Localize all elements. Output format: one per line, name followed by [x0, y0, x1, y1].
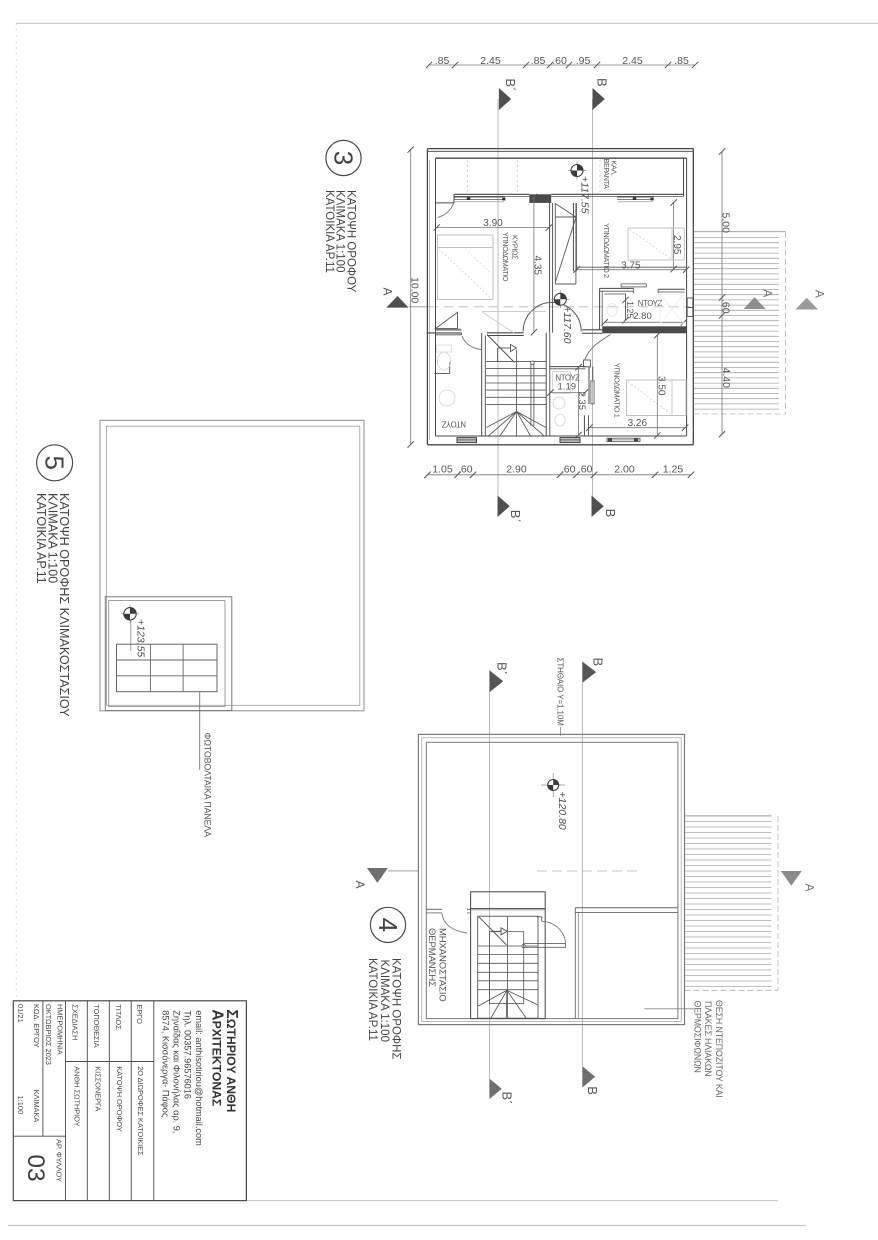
svg-text:ΚΑΤΟΙΚΙΑ ΑΡ.11: ΚΑΤΟΙΚΙΑ ΑΡ.11 [323, 190, 335, 273]
svg-text:ΚΛΙΜΑΚΑ: ΚΛΙΜΑΚΑ [32, 1090, 41, 1123]
svg-text:+117.55: +117.55 [579, 176, 591, 214]
svg-text:ΚΑΤΟΨΗ ΟΡΟΦΟΥ: ΚΑΤΟΨΗ ΟΡΟΦΟΥ [115, 1066, 124, 1132]
svg-text:1.25: 1.25 [663, 464, 684, 476]
svg-text:4.35: 4.35 [531, 256, 542, 276]
svg-text:ΑΡΧΙΤΕΚΤΟΝΑΣ: ΑΡΧΙΤΕΚΤΟΝΑΣ [209, 1009, 226, 1106]
svg-text:.60: .60 [578, 464, 593, 476]
svg-text:3.75: 3.75 [621, 261, 641, 272]
svg-text:+123.55: +123.55 [135, 619, 147, 657]
svg-text:.95: .95 [576, 55, 591, 67]
svg-text:3: 3 [329, 151, 359, 165]
svg-text:ΦΩΤΟΒΟΛΤΑΙΚΑ ΠΑΝΕΛΑ: ΦΩΤΟΒΟΛΤΑΙΚΑ ΠΑΝΕΛΑ [203, 733, 213, 838]
svg-text:.60: .60 [561, 464, 576, 476]
svg-text:.85: .85 [435, 55, 450, 67]
svg-text:Α: Α [803, 884, 817, 892]
svg-text:.85: .85 [674, 55, 689, 67]
svg-text:ΚΩΔ. ΕΡΓΟΥ: ΚΩΔ. ΕΡΓΟΥ [32, 1004, 41, 1048]
svg-text:Τηλ. 00357.96576016: Τηλ. 00357.96576016 [183, 1010, 193, 1099]
svg-text:Ζηναΐδας και Φιλονήλας αρ. 9,: Ζηναΐδας και Φιλονήλας αρ. 9, [172, 1010, 182, 1133]
svg-text:ΒΕΡΑΝΤΑ: ΒΕΡΑΝΤΑ [602, 159, 611, 190]
svg-text:3.90: 3.90 [483, 218, 503, 229]
svg-text:ΣΧΕΔΙΑΣΗ: ΣΧΕΔΙΑΣΗ [71, 1004, 80, 1040]
svg-text:ΥΠΝΟΔΩΜΑΤΙΟ: ΥΠΝΟΔΩΜΑΤΙΟ [501, 232, 510, 282]
svg-text:ΣΩΤΗΡΙΟΥ ΑΝΘΗ: ΣΩΤΗΡΙΟΥ ΑΝΘΗ [223, 1009, 240, 1112]
svg-text:Β: Β [603, 509, 618, 518]
svg-text:ΘΕΡΜΑΝΣΗΣ: ΘΕΡΜΑΝΣΗΣ [426, 928, 437, 987]
svg-text:.60: .60 [552, 55, 567, 67]
svg-text:1.05: 1.05 [432, 464, 453, 476]
svg-text:ΟΚΤΩΒΡΙΟΣ 2023: ΟΚΤΩΒΡΙΟΣ 2023 [44, 1004, 53, 1065]
svg-text:ΥΠΝΟΔΩΜΑΤΙΟ 1: ΥΠΝΟΔΩΜΑΤΙΟ 1 [612, 363, 621, 418]
svg-text:2.90: 2.90 [506, 464, 527, 476]
svg-text:Β΄: Β΄ [494, 662, 509, 675]
svg-text:2Ο ΔΙΩΡΟΦΕΣ ΚΑΤΟΙΚΙΕΣ: 2Ο ΔΙΩΡΟΦΕΣ ΚΑΤΟΙΚΙΕΣ [136, 1066, 145, 1156]
svg-text:ΚΑΤΟΙΚΙΑ ΑΡ.11: ΚΑΤΟΙΚΙΑ ΑΡ.11 [34, 493, 48, 584]
svg-text:1.19: 1.19 [558, 381, 577, 392]
svg-text:+120.80: +120.80 [556, 792, 568, 830]
svg-text:Α: Α [761, 289, 775, 297]
svg-text:Α: Α [353, 881, 367, 889]
svg-text:ΑΡ. ΦΥΛΛΟΥ: ΑΡ. ΦΥΛΛΟΥ [54, 1139, 63, 1182]
svg-text:3.50: 3.50 [656, 376, 667, 396]
svg-text:ΠΛΑΚΕΣ ΗΛΙΑΚΩΝ: ΠΛΑΚΕΣ ΗΛΙΑΚΩΝ [703, 1001, 713, 1077]
svg-text:ΑΝΘΗ ΣΩΤΗΡΙΟΥ: ΑΝΘΗ ΣΩΤΗΡΙΟΥ [72, 1066, 81, 1126]
svg-text:ΚΑΤΟΨΗ ΟΡΟΦΗΣ: ΚΑΤΟΨΗ ΟΡΟΦΗΣ [389, 958, 401, 1060]
svg-text:2.35: 2.35 [576, 392, 587, 411]
svg-text:ΤΙΤΛΟΣ: ΤΙΤΛΟΣ [114, 1004, 123, 1030]
svg-text:Α: Α [381, 288, 395, 296]
svg-text:ΚΥΡΙΩΣ: ΚΥΡΙΩΣ [510, 235, 519, 260]
svg-text:2.95: 2.95 [671, 235, 682, 255]
svg-text:Β: Β [595, 78, 610, 87]
svg-text:.60: .60 [720, 299, 732, 314]
svg-text:2.45: 2.45 [622, 55, 643, 67]
svg-text:.60: .60 [458, 464, 473, 476]
svg-text:ΝΤΟΥΖ: ΝΤΟΥΖ [441, 420, 466, 429]
svg-text:ΚΛΙΜΑΚΑ 1:100: ΚΛΙΜΑΚΑ 1:100 [378, 960, 390, 1042]
svg-text:ΚΙΣΣΟΝΕΡΓΑ: ΚΙΣΣΟΝΕΡΓΑ [94, 1066, 103, 1111]
svg-text:10.00: 10.00 [408, 277, 420, 303]
svg-text:01/21: 01/21 [16, 1004, 25, 1023]
svg-text:ΚΑΤΟΙΚΙΑ ΑΡ.11: ΚΑΤΟΙΚΙΑ ΑΡ.11 [366, 958, 378, 1041]
svg-text:03: 03 [22, 1154, 49, 1181]
svg-text:8574, Κισσόνεργα- Πάφος: 8574, Κισσόνεργα- Πάφος [161, 1010, 171, 1118]
svg-text:Β: Β [585, 1086, 600, 1095]
svg-text:3.26: 3.26 [628, 418, 648, 429]
svg-text:1:100: 1:100 [16, 1096, 25, 1115]
svg-text:+117.60: +117.60 [561, 306, 573, 344]
svg-text:Β΄: Β΄ [499, 1092, 514, 1105]
svg-text:2.45: 2.45 [480, 55, 501, 67]
svg-text:2.00: 2.00 [614, 464, 635, 476]
svg-text:ΕΡΓΟ: ΕΡΓΟ [135, 1004, 144, 1024]
svg-text:ΗΜΕΡΟΜΗΝΙΑ: ΗΜΕΡΟΜΗΝΙΑ [56, 1004, 65, 1055]
svg-text:4: 4 [373, 918, 403, 932]
svg-text:Β΄: Β΄ [503, 78, 518, 91]
svg-text:ΝΤΟΥΖ: ΝΤΟΥΖ [638, 299, 663, 308]
svg-text:Β: Β [591, 658, 606, 667]
svg-text:ΥΠΝΟΔΩΜΑΤΙΟ 2: ΥΠΝΟΔΩΜΑΤΙΟ 2 [602, 223, 611, 278]
svg-text:2.80: 2.80 [633, 311, 652, 322]
svg-text:5.00: 5.00 [720, 213, 732, 234]
svg-text:.85: .85 [531, 55, 546, 67]
svg-text:5: 5 [40, 456, 70, 470]
svg-text:email: anthisotiriou@hotmail.c: email: anthisotiriou@hotmail.com [194, 1010, 204, 1146]
svg-text:ΘΕΡΜΟΣΙΦΩΝΩΝ: ΘΕΡΜΟΣΙΦΩΝΩΝ [693, 1001, 703, 1073]
svg-text:4.40: 4.40 [720, 368, 732, 389]
svg-text:Β΄: Β΄ [508, 510, 523, 523]
svg-text:ΣΤΗΘΑΙΟ Υ=1.10Μ: ΣΤΗΘΑΙΟ Υ=1.10Μ [556, 658, 565, 727]
svg-text:ΘΕΣΗ ΝΤΕΠΟΖΙΤΟΥ ΚΑΙ: ΘΕΣΗ ΝΤΕΠΟΖΙΤΟΥ ΚΑΙ [714, 1000, 724, 1098]
svg-text:ΤΟΠΟΘΕΣΙΑ: ΤΟΠΟΘΕΣΙΑ [92, 1004, 101, 1047]
svg-text:Α: Α [812, 290, 826, 298]
